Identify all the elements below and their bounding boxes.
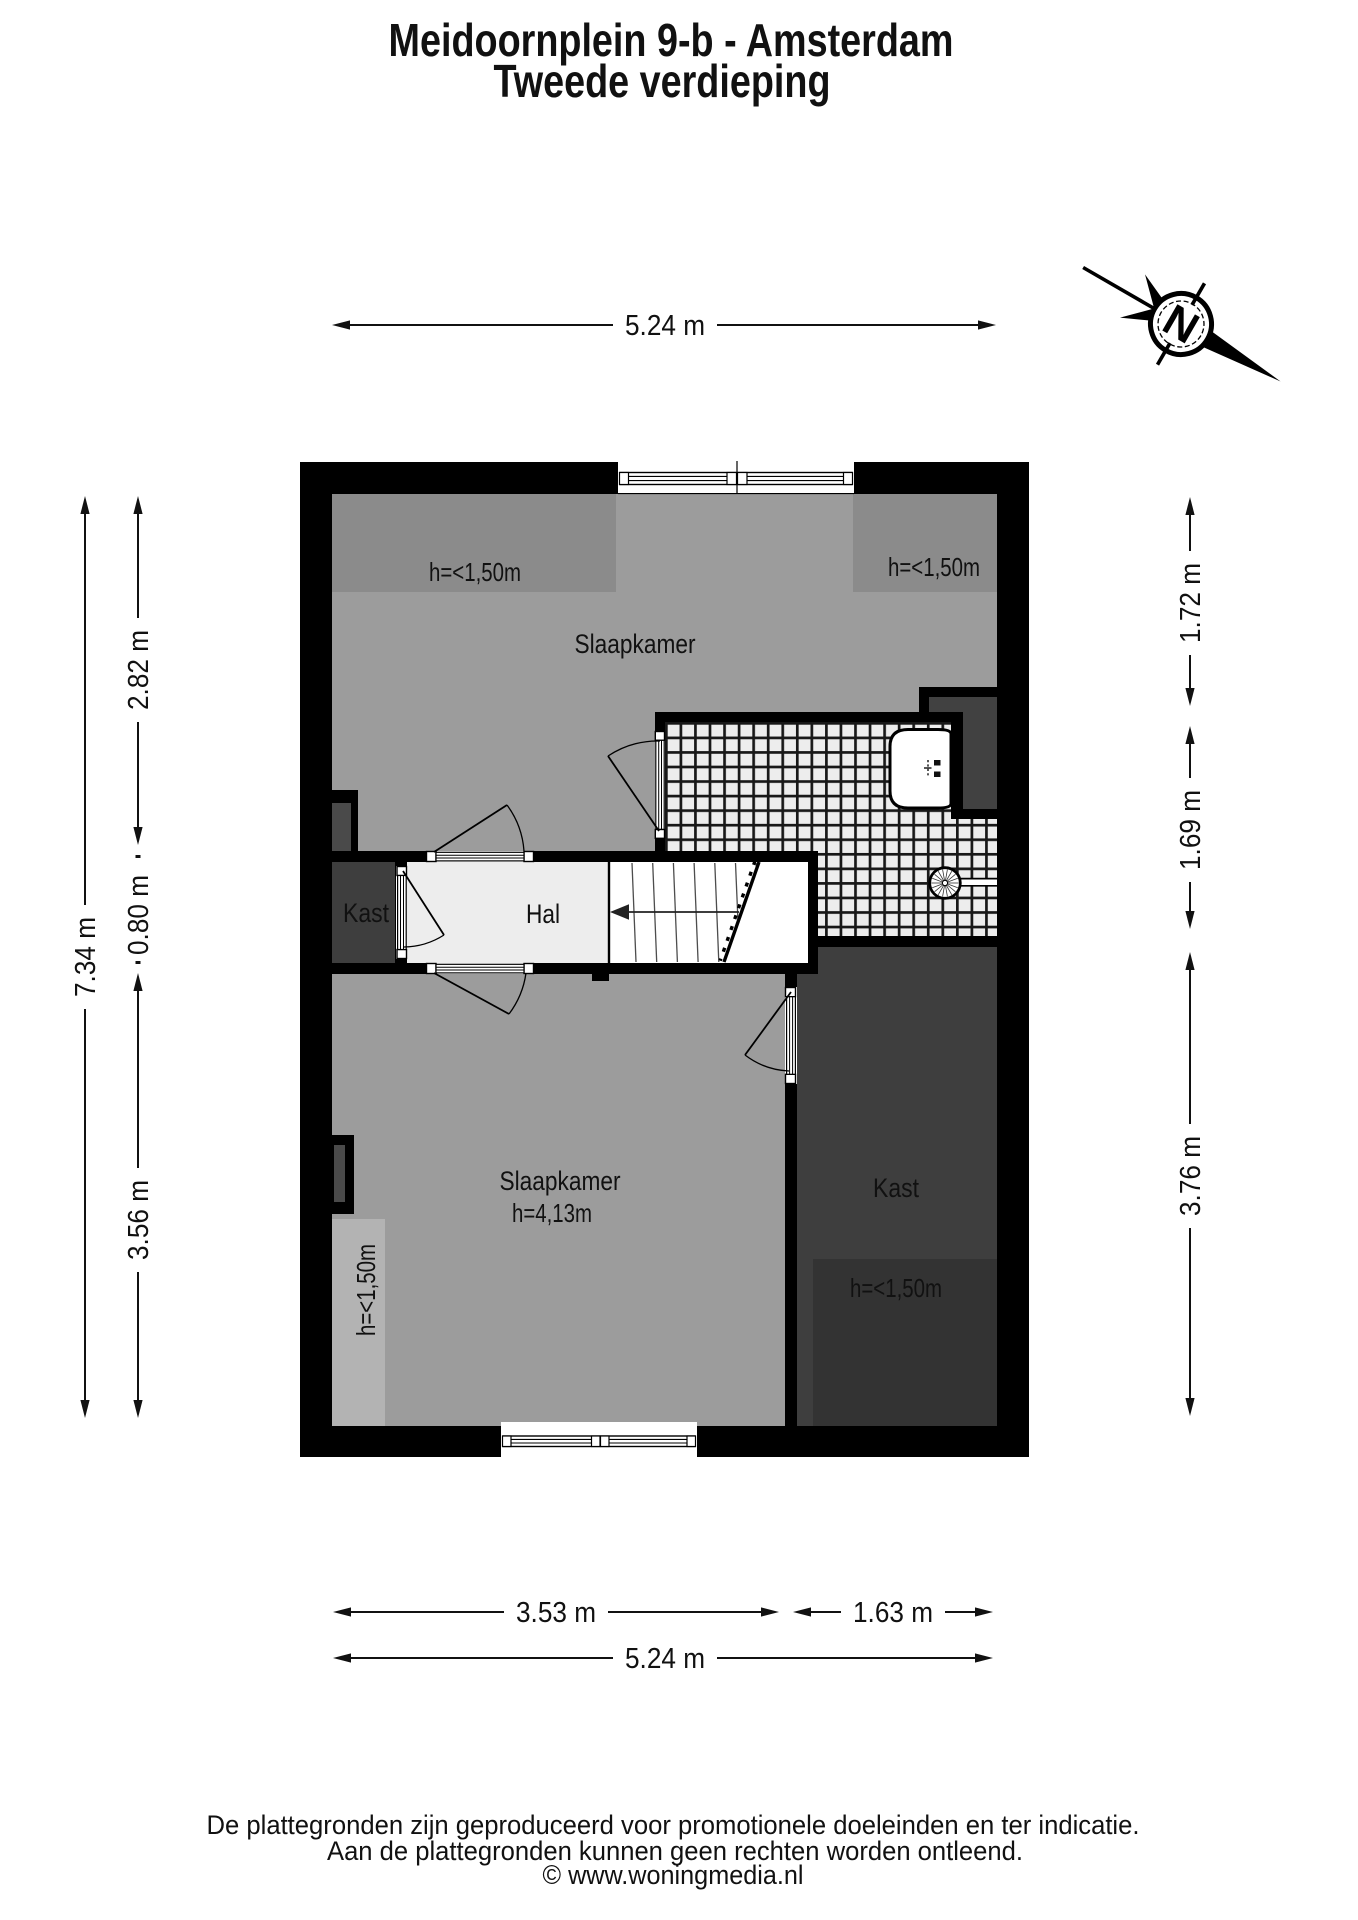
- svg-text:5.24 m: 5.24 m: [625, 310, 705, 342]
- svg-text:h=<1,50m: h=<1,50m: [888, 552, 980, 582]
- svg-text:Kast: Kast: [873, 1173, 919, 1203]
- svg-text:2.82 m: 2.82 m: [123, 630, 155, 710]
- svg-text:Slaapkamer: Slaapkamer: [575, 629, 696, 659]
- svg-text:1.63 m: 1.63 m: [853, 1597, 933, 1629]
- svg-text:3.53 m: 3.53 m: [516, 1597, 596, 1629]
- svg-text:© www.woningmedia.nl: © www.woningmedia.nl: [543, 1860, 804, 1890]
- svg-text:0.80 m: 0.80 m: [123, 875, 155, 955]
- svg-text:7.34 m: 7.34 m: [70, 917, 102, 997]
- svg-text:1.69 m: 1.69 m: [1175, 790, 1207, 870]
- svg-text:h=<1,50m: h=<1,50m: [429, 557, 521, 587]
- svg-text:h=<1,50m: h=<1,50m: [351, 1244, 381, 1336]
- svg-text:3.76 m: 3.76 m: [1175, 1136, 1207, 1216]
- svg-text:Kast: Kast: [343, 898, 389, 928]
- svg-text:h=<1,50m: h=<1,50m: [850, 1273, 942, 1303]
- svg-text:1.72 m: 1.72 m: [1175, 563, 1207, 643]
- svg-text:3.56 m: 3.56 m: [123, 1180, 155, 1260]
- svg-text:Hal: Hal: [526, 899, 560, 929]
- svg-text:Slaapkamer: Slaapkamer: [500, 1166, 621, 1196]
- svg-text:h=4,13m: h=4,13m: [512, 1198, 592, 1228]
- svg-text:5.24 m: 5.24 m: [625, 1643, 705, 1675]
- svg-text:Tweede verdieping: Tweede verdieping: [494, 55, 831, 107]
